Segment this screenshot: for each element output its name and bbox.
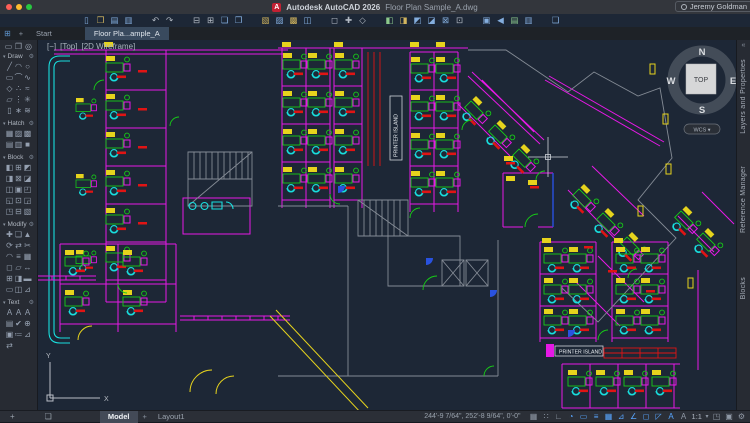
quick-access-toolbar: ▯❒▤▥↶↷⊟⊞❏❐▧▨▩◫◻✚◇◧◨◩◪⊠⊡▣◀▤▥❑ [82,14,710,27]
palette-section-header[interactable]: ▾Hatch⚙ [0,119,37,128]
chevron-down-icon: ▾ [3,155,6,161]
statusbar-tail-icons: ◳▣⚙ [712,411,746,423]
palette-tool-row: ⇄ [0,340,37,351]
hatch-tool-icon[interactable]: ▥ [14,139,23,150]
hatch-tool-icon[interactable]: ▤ [5,139,14,150]
drawing-history-icon[interactable]: ▥ [524,14,533,27]
palette-section-hatch: ▾Hatch⚙▦▨▩▤▥■ [0,119,37,150]
palette-tool-row: ▭◫⊿ [0,284,37,295]
save-icon[interactable]: ▤ [110,14,119,27]
modify-tool-icon[interactable]: ≡ [14,251,23,262]
modify-tool-icon[interactable]: ↔ [23,262,32,273]
palette-tool-row: ▣≔⊿ [0,329,37,340]
draw-tool-icon[interactable]: ⋮ [14,94,23,105]
text-tool-icon[interactable]: A [23,307,32,318]
stamp-icon[interactable]: ❑ [551,14,560,27]
draw-tool-icon[interactable]: ▯ [5,105,14,116]
block-editor-icon[interactable]: ◪ [427,14,436,27]
user-name: Jeremy Goldman [690,2,747,11]
palette-tool-row: AAA [0,307,37,318]
lineweight-icon[interactable]: ≡ [592,411,601,423]
viewcube[interactable]: TOP N S W E WCS ▾ [667,47,736,134]
save-as-icon[interactable]: ▥ [124,14,133,27]
modify-tool-icon[interactable]: ⊿ [23,284,32,295]
block-tool-icon[interactable]: ◰ [23,184,32,195]
modify-tool-icon[interactable]: ▲ [23,229,32,240]
object-snap-icon[interactable]: ◻ [642,411,651,423]
annotation-scale-caret-icon[interactable]: ▾ [705,413,708,420]
text-tool-icon[interactable]: ≔ [14,329,23,340]
block-tool-icon[interactable]: ◲ [23,195,32,206]
printer-island-label-vertical: PRINTER ISLAND [390,96,402,160]
modify-tool-icon[interactable]: ⊞ [5,273,14,284]
text-tool-icon[interactable]: ⊿ [23,329,32,340]
printer-island-text-h: PRINTER ISLAND [559,350,602,356]
viewport-minimize-control[interactable]: [−] [47,42,56,51]
modify-tool-icon[interactable]: ❏ [14,229,23,240]
modify-tool-icon[interactable]: ▬ [23,273,32,284]
statusbar-toggle-icons: ▦∷∟◔▭≡▦⊿∠◻◸AA [529,411,688,423]
dynamic-input-icon[interactable]: ▭ [579,411,588,423]
palette-tool-row: ▭⌒∿ [0,72,37,83]
block-tool-icon[interactable]: ▣ [14,184,23,195]
palette-section-header[interactable]: ▾Block⚙ [0,153,37,162]
ucs-icon: X Y [46,353,109,403]
gear-icon[interactable]: ⚙ [29,221,34,228]
layout-tabs: Model + Layout1 [100,411,191,423]
text-tool-icon [23,340,32,351]
plot-preview-icon[interactable]: ⊞ [206,14,215,27]
statusbar: +❏ Model + Layout1 244'-9 7/64", 252'-8 … [0,410,750,422]
viewport-view-control[interactable]: [Top] [60,42,77,51]
right-panel-strip: « Layers and Properties Reference Manage… [736,40,750,410]
orbit-icon[interactable]: ◇ [358,14,367,27]
document-title: Floor Plan Sample_A.dwg [385,3,478,12]
svg-text:Y: Y [46,353,51,360]
chevron-down-icon: ▾ [3,54,6,60]
share-drawing-icon[interactable]: ▣ [482,14,491,27]
palette-tool-row: ◫▣◰ [0,184,37,195]
partition-walls [38,48,734,408]
customization-gear-icon[interactable]: ⚙ [737,411,746,423]
draw-tool-icon[interactable]: ◇ [5,83,14,94]
workstations [65,53,725,395]
viewcube-south: S [699,105,705,116]
tab-blocks[interactable]: Blocks [740,277,747,299]
draw-tool-icon[interactable]: ▭ [5,72,14,83]
palette-section-label: Hatch [8,120,29,127]
person-icon [681,4,687,10]
viewport-controls: [−] [Top] [2D Wireframe] [47,42,135,51]
palette-tool-row: ◱⊡◲ [0,195,37,206]
palette-top-icons: ▭❐◎ [0,40,37,52]
palette-section-block: ▾Block⚙◧⊞◩◨⊠◪◫▣◰◱⊡◲◳⊟▧ [0,153,37,217]
palette-section-label: Draw [8,53,29,60]
publish-icon[interactable]: ❏ [220,14,229,27]
plot-icon[interactable]: ⊟ [192,14,201,27]
polar-tracking-icon[interactable]: ∠ [629,411,638,423]
palette-icon[interactable]: ❏ [45,412,52,421]
draw-tool-icon[interactable]: ○ [23,61,32,72]
3d-object-snap-icon[interactable]: ◸ [654,411,663,423]
text-tool-icon[interactable]: ⇄ [5,340,14,351]
viewport-visual-style-control[interactable]: [2D Wireframe] [81,42,135,51]
add-tool-icon[interactable]: + [10,412,15,421]
modify-tool-icon[interactable]: ✚ [5,229,14,240]
undo-icon[interactable]: ↶ [151,14,160,27]
viewport-icon[interactable]: ▭ [4,42,13,51]
block-tool-icon[interactable]: ◫ [5,184,14,195]
new-layout-button[interactable]: + [138,411,152,423]
export-icon[interactable]: ◫ [303,14,312,27]
crosshair-cursor [528,137,568,177]
palette-tool-row: ◇∴≈ [0,83,37,94]
blue-accents [338,173,575,337]
gear-icon[interactable]: ⚙ [29,120,34,127]
annotation-visibility-icon[interactable]: A [667,411,676,423]
palette-tool-row: ◨⊠◪ [0,173,37,184]
ucs-settings-icon[interactable]: ◎ [24,42,33,51]
palette-section-draw: ▾Draw⚙╱◠○▭⌒∿◇∴≈▱⋮✳▯∗≋ [0,52,37,116]
palette-section-label: Block [8,154,29,161]
svg-text:X: X [104,396,109,403]
chevron-down-icon: ▾ [3,121,6,127]
wcs-dropdown: WCS ▾ [693,128,710,134]
hatch-tool-icon[interactable]: ■ [23,139,32,150]
viewcube-north: N [699,47,706,58]
open-folder-icon[interactable]: ❒ [96,14,105,27]
viewcube-top-face: TOP [694,77,709,84]
text-tool-icon[interactable]: ✔ [14,318,23,329]
floor-plan-drawing: PRINTER ISLAND PRINTER ISLAND X Y [38,40,736,410]
palette-tool-row: ◻▱↔ [0,262,37,273]
palette-tool-row: ◠≡▦ [0,251,37,262]
tab-start[interactable]: Start [27,27,61,40]
modify-tool-icon[interactable]: ◻ [5,262,14,273]
palette-tool-row: ◧⊞◩ [0,162,37,173]
layer-state-icon[interactable]: ◨ [399,14,408,27]
redo-icon[interactable]: ↷ [165,14,174,27]
modify-tool-icon[interactable]: ✂ [23,240,32,251]
block-tool-icon[interactable]: ◳ [5,206,14,217]
modify-tool-icon[interactable]: ◫ [14,284,23,295]
cursor-coordinates: 244'-9 7/64", 252'-8 9/64", 0'-0" [424,413,520,420]
layer-properties-icon[interactable]: ◧ [385,14,394,27]
modify-tool-icon[interactable]: ◨ [14,273,23,284]
palette-tool-row: ▤✔⊕ [0,318,37,329]
text-tool-icon[interactable]: A [5,307,14,318]
new-drawing-tab-button[interactable]: + [15,27,27,40]
object-snap-tracking-icon[interactable]: ⊿ [617,411,626,423]
tab-model[interactable]: Model [100,411,138,423]
draw-tool-icon[interactable]: ≈ [23,83,32,94]
modify-tool-icon[interactable]: ▦ [23,251,32,262]
draw-tool-icon[interactable]: ✳ [23,94,32,105]
draw-tool-icon[interactable]: ∿ [23,72,32,83]
modify-tool-icon[interactable]: ▭ [5,284,14,295]
hatch-tool-icon[interactable]: ▩ [23,128,32,139]
pan-icon[interactable]: ✚ [344,14,353,27]
palette-section-label: Modify [8,221,29,228]
gear-icon[interactable]: ⚙ [29,299,34,306]
annotation-scale[interactable]: 1:1 [692,412,702,421]
annotation-monitor-icon[interactable]: ▣ [725,411,734,423]
block-tool-icon[interactable]: ▧ [23,206,32,217]
printer-island-label-horizontal: PRINTER ISLAND [546,344,603,357]
block-tool-icon[interactable]: ◱ [5,195,14,206]
import-icon[interactable]: ▩ [289,14,298,27]
text-tool-icon[interactable]: ▣ [5,329,14,340]
palette-tool-row: ◳⊟▧ [0,206,37,217]
block-tool-icon[interactable]: ◩ [23,162,32,173]
palette-section-header[interactable]: ▾Modify⚙ [0,220,37,229]
annotation-autoscale-icon[interactable]: A [679,411,688,423]
text-tool-icon [14,340,23,351]
tool-palette: ▭❐◎ ▾Draw⚙╱◠○▭⌒∿◇∴≈▱⋮✳▯∗≋▾Hatch⚙▦▨▩▤▥■▾B… [0,40,38,410]
viewcube-east: E [730,76,736,87]
block-tool-icon[interactable]: ⊞ [14,162,23,173]
block-tool-icon[interactable]: ⊡ [14,195,23,206]
selection-cycling-icon[interactable]: ◔ [567,411,576,423]
palette-tool-row: ▱⋮✳ [0,94,37,105]
palette-tool-row: ✚❏▲ [0,229,37,240]
sheet-set-manager-icon[interactable]: ▧ [261,14,270,27]
printer-island-text-v: PRINTER ISLAND [394,114,400,157]
window-title: A Autodesk AutoCAD 2026 Floor Plan Sampl… [0,0,750,14]
autocad-logo-icon: A [272,3,281,12]
draw-tool-icon[interactable]: ∗ [14,105,23,116]
block-tool-icon[interactable]: ◪ [23,173,32,184]
statusbar-left-icons: +❏ [10,412,52,421]
modify-tool-icon[interactable]: ⇄ [14,240,23,251]
send-icon[interactable]: ◀ [496,14,505,27]
new-file-icon[interactable]: ▯ [82,14,91,27]
palette-section-modify: ▾Modify⚙✚❏▲⟳⇄✂◠≡▦◻▱↔⊞◨▬▭◫⊿ [0,220,37,295]
batch-plot-icon[interactable]: ❐ [234,14,243,27]
chevron-down-icon: ▾ [3,300,6,306]
text-tool-icon[interactable]: A [14,307,23,318]
draw-tool-icon[interactable]: ∴ [14,83,23,94]
markup-import-icon[interactable]: ▨ [275,14,284,27]
attach-reference-icon[interactable]: ⊠ [441,14,450,27]
drawing-compare-icon[interactable]: ▤ [510,14,519,27]
collapse-panel-icon[interactable]: « [742,40,746,51]
model-paper-toggle-icon[interactable]: ▦ [529,411,538,423]
red-annotations [138,52,676,358]
gear-icon[interactable]: ⚙ [29,53,34,60]
xref-attach-icon[interactable]: ◩ [413,14,422,27]
user-account-button[interactable]: Jeremy Goldman [675,1,750,12]
palette-tool-row: ╱◠○ [0,61,37,72]
tab-layers-and-properties[interactable]: Layers and Properties [740,59,747,134]
block-tool-icon[interactable]: ◧ [5,162,14,173]
palette-tool-row: ⊞◨▬ [0,273,37,284]
autocad-window: A Autodesk AutoCAD 2026 Floor Plan Sampl… [0,0,750,422]
draw-tool-icon[interactable]: ⌒ [14,72,23,83]
palette-tool-row: ⟳⇄✂ [0,240,37,251]
grid-display-icon[interactable]: ∷ [542,411,551,423]
hatch-tool-icon[interactable]: ▨ [14,128,23,139]
text-tool-icon[interactable]: ▤ [5,318,14,329]
named-views-icon[interactable]: ❐ [14,42,23,51]
tab-layout1[interactable]: Layout1 [152,411,191,423]
chevron-down-icon: ▾ [3,222,6,228]
block-tool-icon[interactable]: ⊟ [14,206,23,217]
statusbar-right: 244'-9 7/64", 252'-8 9/64", 0'-0" ▦∷∟◔▭≡… [424,411,750,423]
drawing-canvas[interactable]: [−] [Top] [2D Wireframe] [38,40,736,410]
palette-section-header[interactable]: ▾Text⚙ [0,298,37,307]
viewcube-west: W [667,76,676,87]
text-tool-icon[interactable]: ⊕ [23,318,32,329]
palette-section-header[interactable]: ▾Draw⚙ [0,52,37,61]
app-menu-icon[interactable]: ⊞ [0,27,15,40]
palette-tool-row: ▦▨▩ [0,128,37,139]
draw-tool-icon[interactable]: ╱ [5,61,14,72]
gear-icon[interactable]: ⚙ [29,154,34,161]
draw-tool-icon[interactable]: ≋ [23,105,32,116]
palette-section-label: Text [8,299,29,306]
modify-tool-icon[interactable]: ▱ [14,262,23,273]
block-tool-icon[interactable]: ◨ [5,173,14,184]
document-tabbar: ⊞ + Start Floor Pla...ample_A [0,27,750,40]
modify-tool-icon[interactable]: ◠ [5,251,14,262]
tab-reference-manager[interactable]: Reference Manager [740,166,747,233]
workspace-switching-icon[interactable]: ◳ [712,411,721,423]
transparency-icon[interactable]: ▦ [604,411,613,423]
modify-tool-icon[interactable]: ⟳ [5,240,14,251]
palette-tool-row: ▯∗≋ [0,105,37,116]
snap-mode-icon[interactable]: ∟ [554,411,563,423]
titlebar: A Autodesk AutoCAD 2026 Floor Plan Sampl… [0,0,750,14]
measure-icon[interactable]: ◻ [330,14,339,27]
draw-tool-icon[interactable]: ▱ [5,94,14,105]
tab-floor-plan-sample[interactable]: Floor Pla...ample_A [85,27,169,40]
properties-icon[interactable]: ⊡ [455,14,464,27]
palette-section-text: ▾Text⚙AAA▤✔⊕▣≔⊿⇄ [0,298,37,351]
block-tool-icon[interactable]: ⊠ [14,173,23,184]
app-title: Autodesk AutoCAD 2026 [286,3,380,12]
hatch-tool-icon[interactable]: ▦ [5,128,14,139]
draw-tool-icon[interactable]: ◠ [14,61,23,72]
palette-tool-row: ▤▥■ [0,139,37,150]
